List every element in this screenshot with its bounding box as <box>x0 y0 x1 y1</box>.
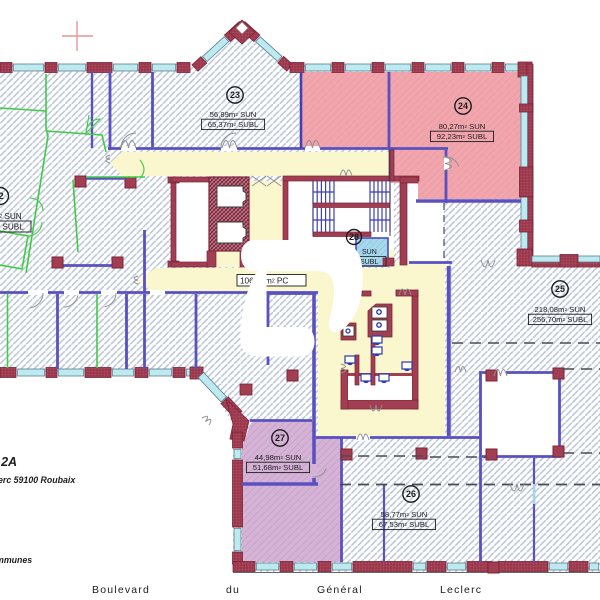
svg-text:51,68m2 SUBL: 51,68m2 SUBL <box>253 463 304 472</box>
svg-text:SUN: SUN <box>362 249 377 256</box>
svg-text:58,77m2 SUN: 58,77m2 SUN <box>381 510 428 519</box>
svg-text:mmunes: mmunes <box>0 555 32 565</box>
svg-text:44,98m2 SUN: 44,98m2 SUN <box>255 453 302 462</box>
svg-text:28: 28 <box>349 232 359 242</box>
svg-text:Boulevard: Boulevard <box>92 584 150 596</box>
svg-text:Leclerc: Leclerc <box>440 584 482 596</box>
svg-text:T 2A: T 2A <box>0 455 17 469</box>
svg-text:Général: Général <box>317 584 363 596</box>
svg-text:27,60m2 SUBL: 27,60m2 SUBL <box>0 223 24 232</box>
svg-text:218,08m2 SUN: 218,08m2 SUN <box>535 305 586 314</box>
svg-text:du: du <box>226 584 240 596</box>
svg-text:25: 25 <box>555 284 565 294</box>
svg-text:23: 23 <box>230 90 240 100</box>
svg-text:80,27m2 SUN: 80,27m2 SUN <box>439 122 486 131</box>
svg-text:2: 2 <box>0 191 4 202</box>
svg-text:65,37m2 SUBL: 65,37m2 SUBL <box>208 120 259 129</box>
svg-text:27: 27 <box>275 433 285 443</box>
svg-text:26: 26 <box>406 489 416 499</box>
svg-text:erc 59100 Roubaix: erc 59100 Roubaix <box>0 475 76 485</box>
svg-text:256,70m2 SUBL: 256,70m2 SUBL <box>533 315 589 324</box>
svg-text:56,89m2 SUN: 56,89m2 SUN <box>210 110 257 119</box>
svg-text:67,53m2 SUBL: 67,53m2 SUBL <box>379 520 430 529</box>
svg-text:92,23m2 SUBL: 92,23m2 SUBL <box>437 132 488 141</box>
svg-text:24: 24 <box>458 101 468 111</box>
svg-text:24,00m2 SUN: 24,00m2 SUN <box>0 212 22 221</box>
svg-text:SUBL: SUBL <box>360 259 378 266</box>
